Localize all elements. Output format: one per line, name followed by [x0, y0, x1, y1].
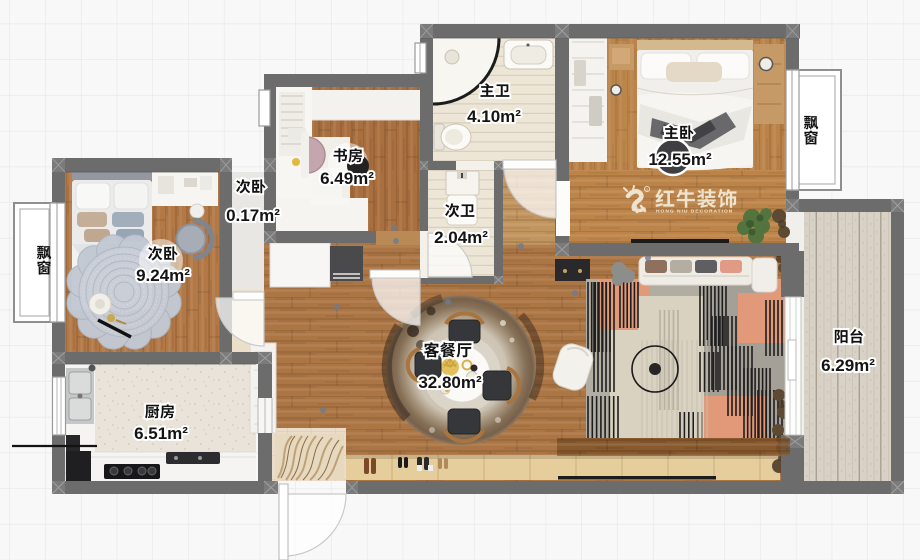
svg-text:0.17m²: 0.17m²	[226, 206, 280, 225]
svg-text:HONG NIU DECORATION: HONG NIU DECORATION	[656, 209, 733, 215]
svg-text:32.80m²: 32.80m²	[418, 373, 482, 392]
svg-text:6.49m²: 6.49m²	[320, 169, 374, 188]
svg-text:2.04m²: 2.04m²	[434, 228, 488, 247]
svg-text:6.29m²: 6.29m²	[821, 356, 875, 375]
svg-text:4.10m²: 4.10m²	[467, 107, 521, 126]
svg-text:12.55m²: 12.55m²	[648, 150, 712, 169]
svg-text:6.51m²: 6.51m²	[134, 424, 188, 443]
svg-text:9.24m²: 9.24m²	[136, 266, 190, 285]
